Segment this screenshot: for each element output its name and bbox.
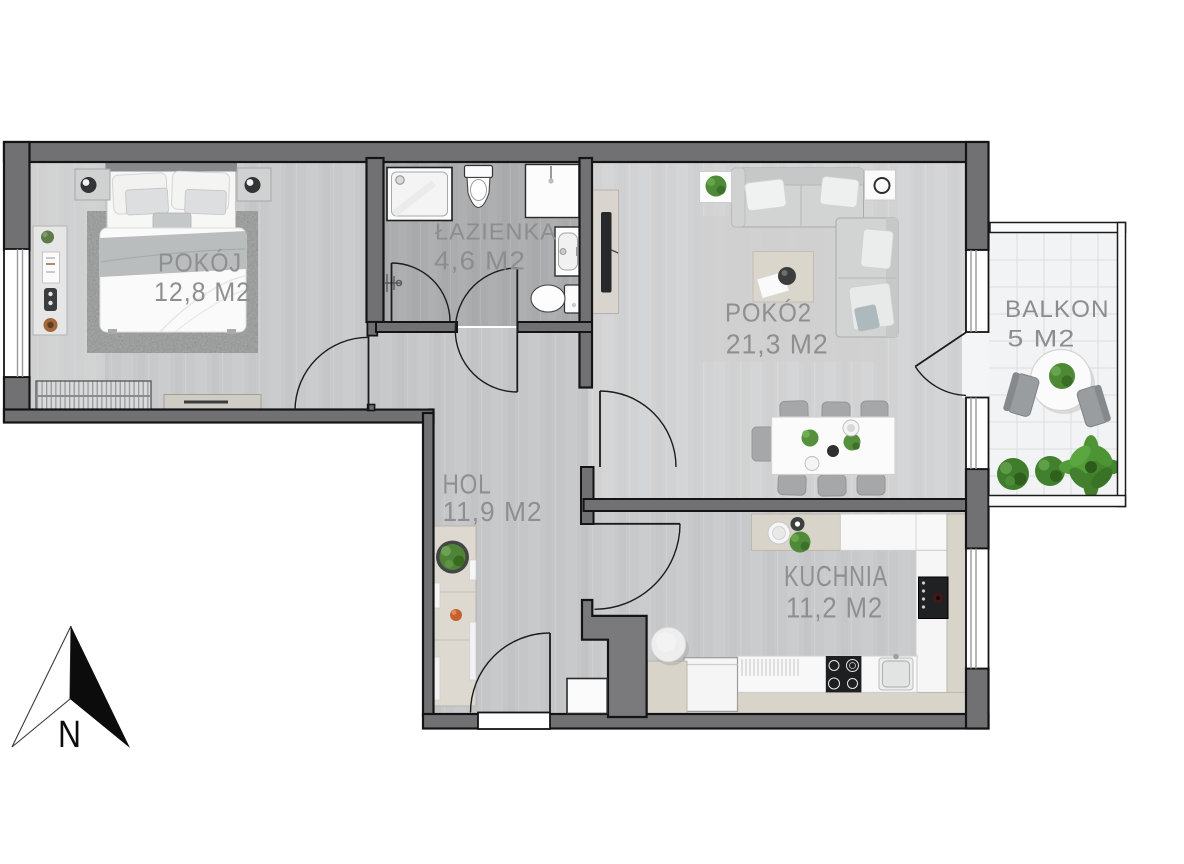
svg-text:POKÓ2: POKÓ2 xyxy=(725,298,812,328)
svg-text:POKÓJ: POKÓJ xyxy=(158,248,242,278)
svg-text:11,9 M2: 11,9 M2 xyxy=(443,496,543,527)
svg-text:N: N xyxy=(58,714,81,756)
svg-text:BALKON: BALKON xyxy=(1005,296,1110,323)
svg-text:4,6 M2: 4,6 M2 xyxy=(434,246,526,276)
svg-text:ŁAZIENKA: ŁAZIENKA xyxy=(435,219,557,245)
svg-text:11,2 M2: 11,2 M2 xyxy=(786,593,883,625)
svg-text:5 M2: 5 M2 xyxy=(1008,326,1076,353)
svg-text:KUCHNIA: KUCHNIA xyxy=(784,561,888,593)
svg-text:12,8 M2: 12,8 M2 xyxy=(154,277,251,307)
svg-text:HOL: HOL xyxy=(443,469,492,500)
svg-text:21,3 M2: 21,3 M2 xyxy=(726,329,829,360)
